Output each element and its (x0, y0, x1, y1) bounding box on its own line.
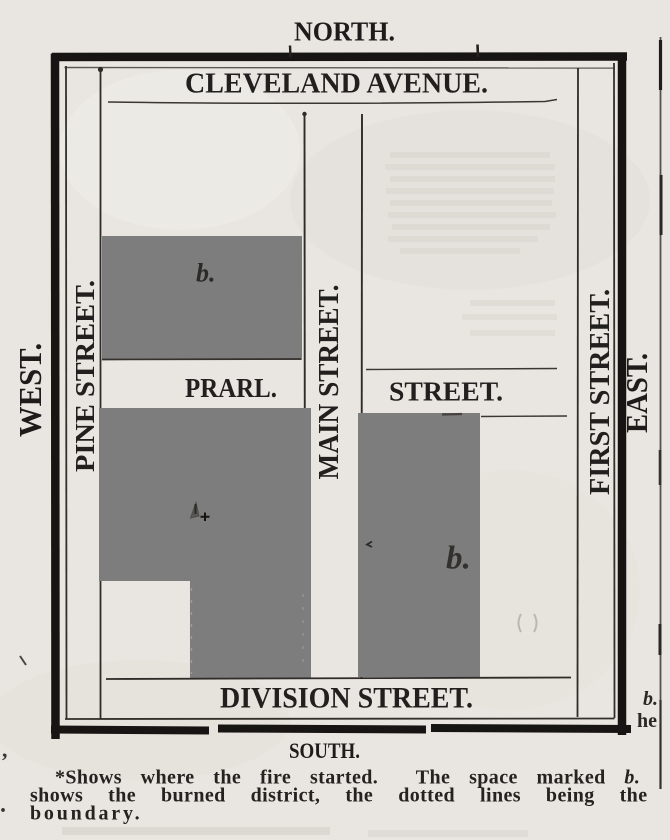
svg-text:PRARL.: PRARL. (185, 373, 277, 403)
svg-text:PINE STREET.: PINE STREET. (70, 280, 100, 472)
svg-text:MAIN STREET.: MAIN STREET. (313, 285, 345, 480)
svg-text:FIRST STREET.: FIRST STREET. (584, 289, 616, 495)
svg-text:.: . (0, 792, 6, 818)
svg-text:CLEVELAND AVENUE.: CLEVELAND AVENUE. (185, 69, 488, 100)
svg-text:‚: ‚ (1, 737, 8, 762)
svg-text:boundary.: boundary. (30, 803, 142, 825)
svg-text:SOUTH.: SOUTH. (289, 738, 360, 763)
svg-text:b.: b. (643, 688, 658, 710)
svg-text:b.: b. (446, 541, 471, 577)
svg-text:NORTH.: NORTH. (294, 17, 395, 47)
svg-text:STREET.: STREET. (389, 377, 503, 407)
svg-text:WEST.: WEST. (12, 343, 48, 437)
svg-text:b.: b. (196, 259, 216, 288)
svg-text:EAST.: EAST. (619, 353, 654, 433)
svg-text:DIVISION STREET.: DIVISION STREET. (220, 682, 473, 715)
svg-text:he: he (637, 710, 657, 732)
